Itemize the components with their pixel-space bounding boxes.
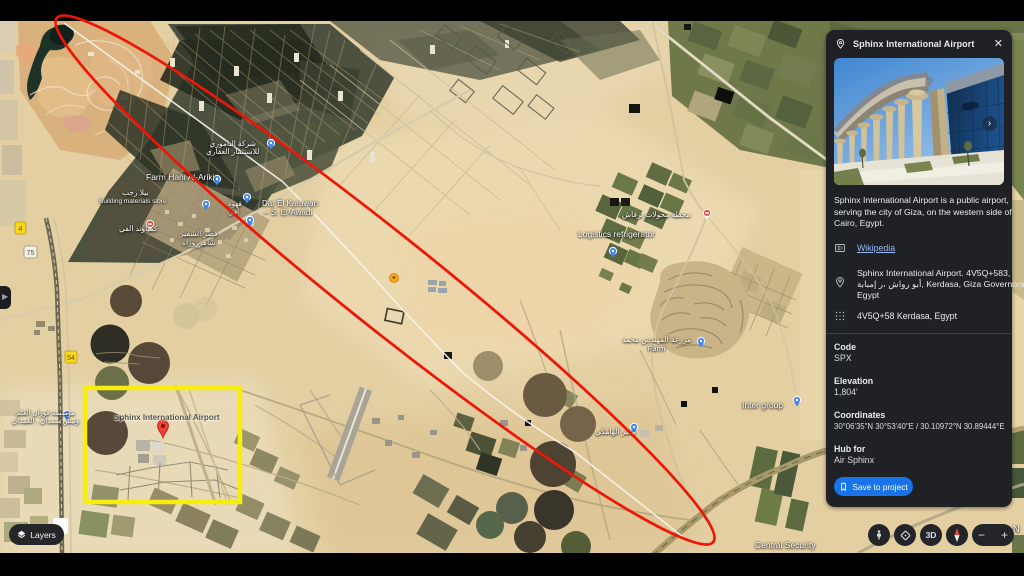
svg-text:54: 54 bbox=[67, 355, 75, 362]
svg-text:4: 4 bbox=[19, 226, 23, 233]
svg-text:75: 75 bbox=[27, 250, 35, 257]
